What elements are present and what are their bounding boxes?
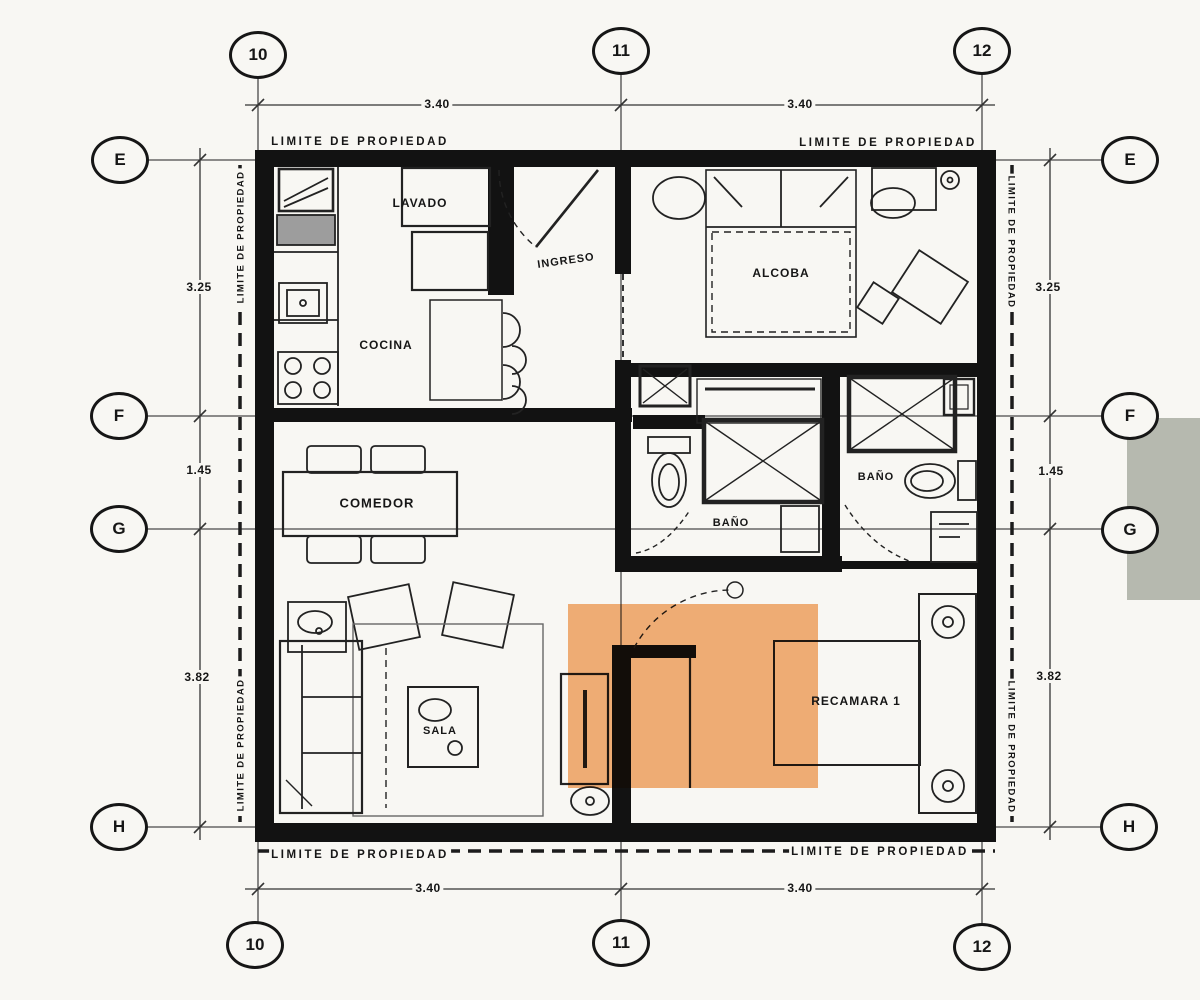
alcoba-desk: [871, 168, 959, 218]
room-label-comedor: COMEDOR: [340, 496, 415, 511]
grid-marker-right-f: F: [1101, 392, 1159, 440]
grid-marker-bottom-11: 11: [592, 919, 650, 967]
grid-marker-top-12: 12: [953, 27, 1011, 75]
property-limit-label: LIMITE DE PROPIEDAD: [1006, 174, 1017, 311]
kitchen-table: [430, 300, 520, 400]
room-label-bano-2: BAÑO: [858, 471, 894, 483]
wall-cocina-comedor: [255, 408, 632, 422]
grid-marker-right-h: H: [1100, 803, 1158, 851]
property-limit-label: LIMITE DE PROPIEDAD: [236, 169, 247, 306]
bath1-door-swing: [636, 510, 690, 553]
bath2-shelf: [931, 512, 977, 562]
washer: [277, 215, 335, 245]
wall-left: [255, 150, 274, 842]
highlight-area-orange: [568, 604, 818, 788]
rug: [353, 624, 543, 816]
wall-sink-counter: [633, 415, 705, 429]
grid-marker-left-g: G: [90, 505, 148, 553]
alcoba-chair: [892, 250, 968, 324]
dim-bottom-1: 3.40: [412, 881, 443, 895]
room-label-lavado: LAVADO: [393, 196, 448, 210]
laundry-sink: [279, 169, 333, 211]
alcoba-bed: [706, 170, 856, 337]
bath2-sink: [944, 379, 974, 415]
ottoman: [653, 177, 705, 219]
dim-top-2: 3.40: [784, 97, 815, 111]
dim-right-2: 1.45: [1035, 464, 1066, 478]
floor-plan-drawing: [0, 0, 1200, 1000]
grid-marker-top-11: 11: [592, 27, 650, 75]
wall-right: [977, 150, 996, 842]
kitchen-sink: [279, 283, 327, 323]
grid-marker-right-e: E: [1101, 136, 1159, 184]
dim-left-3: 3.82: [181, 670, 212, 684]
property-limit-label: LIMITE DE PROPIEDAD: [269, 849, 451, 861]
bath1-toilet: [648, 437, 690, 507]
property-limit-label: LIMITE DE PROPIEDAD: [269, 136, 451, 148]
dim-right-1: 3.25: [1032, 280, 1063, 294]
armchair-2: [442, 582, 514, 648]
wall-bottom: [255, 823, 996, 842]
dim-right-3: 3.82: [1033, 669, 1064, 683]
grid-marker-left-e: E: [91, 136, 149, 184]
floor-lamp: [571, 787, 609, 815]
grid-marker-right-g: G: [1101, 506, 1159, 554]
alcoba-side-table: [857, 282, 898, 323]
wall-central-upper: [615, 150, 631, 274]
grid-marker-left-f: F: [90, 392, 148, 440]
dim-left-2: 1.45: [183, 463, 214, 477]
wall-bath-divider: [822, 363, 840, 572]
room-label-sala: SALA: [423, 725, 457, 737]
property-limit-label: LIMITE DE PROPIEDAD: [1006, 679, 1017, 816]
side-table-lamp: [288, 602, 346, 652]
property-limit-label: LIMITE DE PROPIEDAD: [797, 137, 979, 149]
wall-central-mid: [615, 360, 631, 572]
property-limit-label: LIMITE DE PROPIEDAD: [236, 677, 247, 814]
bath2-door-swing: [845, 505, 912, 562]
room-label-cocina: COCINA: [359, 338, 412, 352]
grid-marker-bottom-10: 10: [226, 921, 284, 969]
floor-plan-page: 10 11 12 10 11 12 E F G H E F G H 3.40 3…: [0, 0, 1200, 1000]
stove: [278, 352, 338, 404]
dim-left-1: 3.25: [183, 280, 214, 294]
grid-marker-bottom-12: 12: [953, 923, 1011, 971]
room-label-bano-1: BAÑO: [713, 517, 749, 529]
bath2-toilet: [905, 461, 976, 500]
dim-top-1: 3.40: [421, 97, 452, 111]
bath1-shower: [704, 420, 822, 502]
wall-lavado-ingreso: [488, 150, 514, 295]
room-label-alcoba: ALCOBA: [752, 266, 809, 280]
bath2-shower: [849, 377, 955, 451]
kitchen-cabinet: [412, 232, 488, 290]
sofa: [280, 641, 386, 813]
dim-bottom-2: 3.40: [784, 881, 815, 895]
grid-marker-left-h: H: [90, 803, 148, 851]
property-limit-label: LIMITE DE PROPIEDAD: [789, 846, 971, 858]
grid-marker-top-10: 10: [229, 31, 287, 79]
wall-bath-bottom: [615, 556, 842, 572]
room-label-recamara-1: RECAMARA 1: [811, 694, 901, 708]
